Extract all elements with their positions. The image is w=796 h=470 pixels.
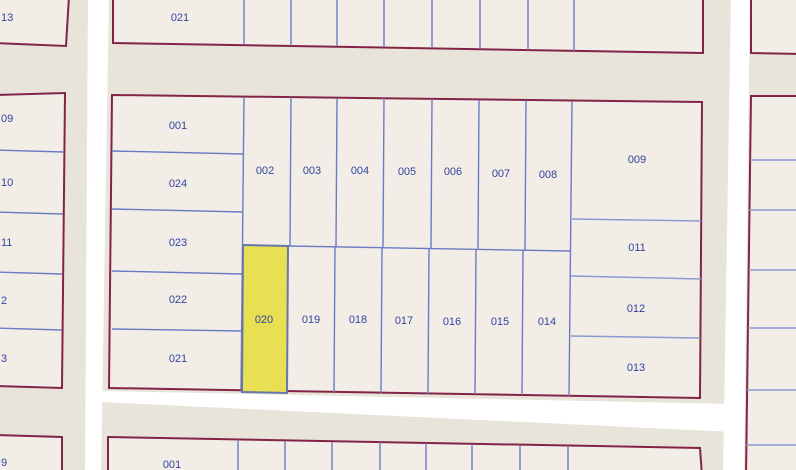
parcel-label-020: 020	[255, 314, 273, 326]
parcel-label-015: 015	[491, 316, 509, 328]
parcel-label-008: 008	[539, 169, 557, 181]
parcel-label-002: 002	[256, 165, 274, 177]
parcel-label-009: 009	[628, 154, 646, 166]
parcel-label-011: 011	[628, 242, 646, 254]
parcel-label-top-strip-021: 021	[171, 12, 189, 24]
parcel-label-007: 007	[492, 168, 510, 180]
parcel-label-016: 016	[443, 316, 461, 328]
parcel-label-top-left: 13	[1, 12, 13, 24]
parcel-label-023: 023	[169, 237, 187, 249]
parcel-label-021: 021	[169, 353, 187, 365]
block-top-strip[interactable]	[113, 0, 703, 53]
parcel-label-022: 022	[169, 294, 187, 306]
parcel-label-012: 012	[627, 303, 645, 315]
parcel-label-014: 014	[538, 316, 556, 328]
block-top-right[interactable]	[751, 0, 796, 54]
parcel-label-001: 001	[169, 120, 187, 132]
parcel-label-013: 013	[627, 362, 645, 374]
parcel-map-canvas[interactable]: 13 021 09 10 11 2 3 001 024 023 022 021 …	[0, 0, 796, 470]
block-bottom-left[interactable]	[0, 435, 62, 470]
parcel-label-018: 018	[349, 314, 367, 326]
parcel-label-bottom-001: 001	[163, 459, 181, 470]
parcel-label-left-11: 11	[1, 237, 12, 249]
parcel-map[interactable]: 13 021 09 10 11 2 3 001 024 023 022 021 …	[0, 0, 796, 470]
parcel-label-bottom-left-9: 9	[1, 457, 7, 469]
parcel-label-006: 006	[444, 166, 462, 178]
parcel-label-003: 003	[303, 165, 321, 177]
parcel-label-left-09: 09	[1, 113, 13, 125]
parcel-label-024: 024	[169, 178, 187, 190]
parcel-label-005: 005	[398, 166, 416, 178]
parcel-label-004: 004	[351, 165, 369, 177]
parcel-label-left-3: 3	[1, 353, 7, 365]
parcel-label-017: 017	[395, 315, 413, 327]
parcel-label-left-10: 10	[1, 177, 13, 189]
block-main[interactable]	[109, 95, 702, 398]
parcel-label-019: 019	[302, 314, 320, 326]
block-right-column[interactable]	[746, 96, 796, 470]
parcel-label-left-2: 2	[1, 295, 7, 307]
